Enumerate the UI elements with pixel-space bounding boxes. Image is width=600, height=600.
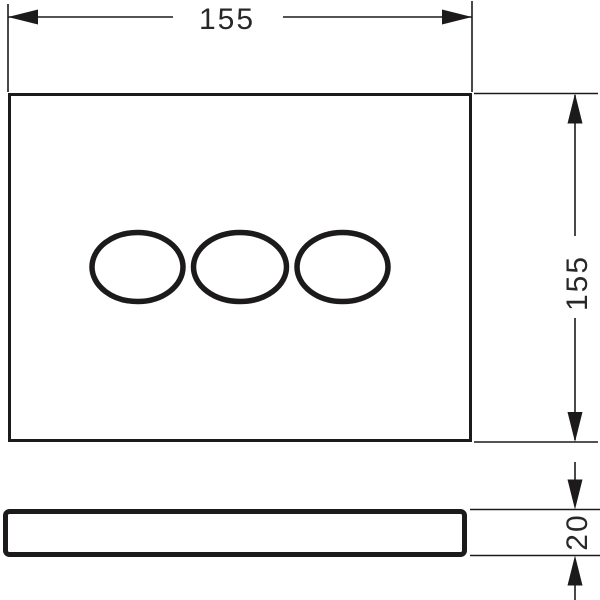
right-height-dimension: 155 <box>474 94 598 443</box>
arrow-down-inward-icon <box>568 480 583 510</box>
depth-dimension-label: 20 <box>561 513 594 550</box>
front-view <box>10 95 471 441</box>
side-view <box>6 512 465 555</box>
button-hole-right <box>297 233 388 302</box>
arrow-up-icon <box>568 94 583 124</box>
dimension-drawing: 155 155 20 <box>0 0 600 600</box>
width-dimension-label: 155 <box>199 3 255 36</box>
depth-dimension: 20 <box>470 462 600 600</box>
arrow-left-icon <box>8 10 38 25</box>
height-dimension-label: 155 <box>561 255 594 311</box>
button-hole-center <box>194 233 287 302</box>
faceplate-side-outline <box>6 512 465 555</box>
arrow-down-icon <box>568 412 583 442</box>
arrow-up-inward-icon <box>568 556 583 586</box>
button-hole-left <box>92 233 183 302</box>
top-width-dimension: 155 <box>8 1 472 92</box>
arrow-right-icon <box>442 10 472 25</box>
technical-drawing-canvas: 155 155 20 <box>0 0 600 600</box>
